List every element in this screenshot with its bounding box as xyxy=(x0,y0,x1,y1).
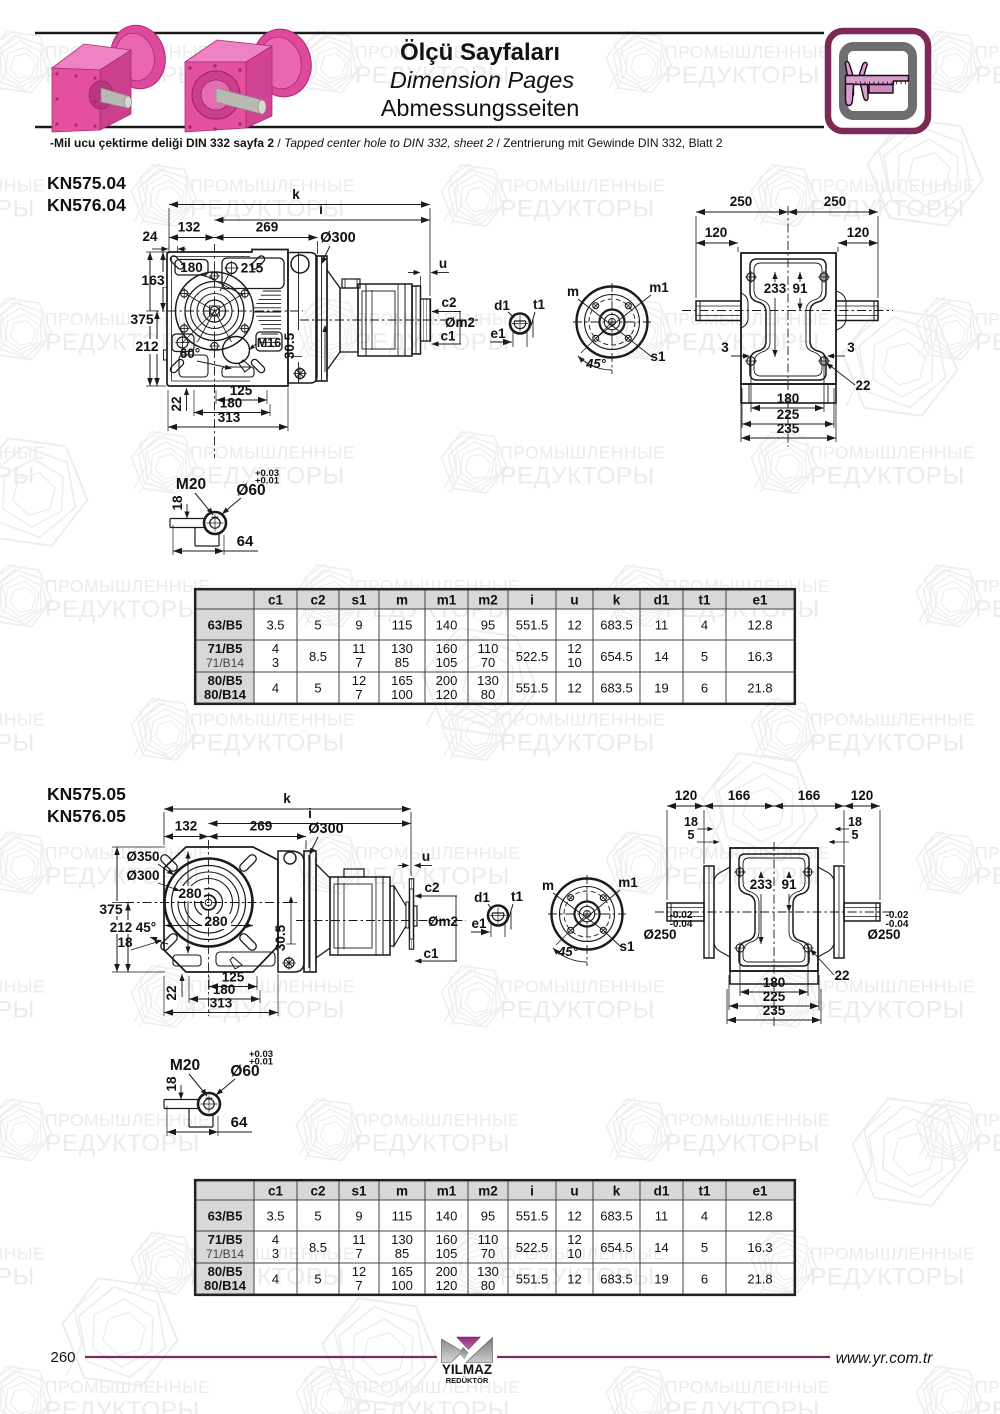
svg-text:5: 5 xyxy=(701,649,708,664)
svg-text:19: 19 xyxy=(654,1272,668,1287)
svg-text:m1: m1 xyxy=(437,1184,457,1199)
svg-text:250: 250 xyxy=(730,194,753,209)
svg-text:130: 130 xyxy=(477,1264,499,1279)
svg-text:5: 5 xyxy=(314,1272,321,1287)
svg-text:c1: c1 xyxy=(440,329,456,344)
svg-text:d1: d1 xyxy=(654,1184,670,1199)
svg-text:t1: t1 xyxy=(698,593,710,608)
svg-text:130: 130 xyxy=(391,1232,413,1247)
svg-text:100: 100 xyxy=(391,687,413,702)
svg-text:70: 70 xyxy=(481,655,495,670)
svg-text:165: 165 xyxy=(391,1264,413,1279)
svg-text:m: m xyxy=(542,878,554,893)
svg-text:7: 7 xyxy=(355,687,362,702)
svg-text:Ø350: Ø350 xyxy=(126,849,159,864)
svg-text:45°: 45° xyxy=(557,944,578,959)
svg-text:t1: t1 xyxy=(698,1184,710,1199)
svg-text:180: 180 xyxy=(763,975,786,990)
svg-text:d1: d1 xyxy=(494,298,510,313)
svg-text:522.5: 522.5 xyxy=(516,649,549,664)
svg-text:115: 115 xyxy=(392,618,413,633)
svg-text:www.yr.com.tr: www.yr.com.tr xyxy=(836,1350,934,1367)
svg-text:4: 4 xyxy=(272,681,279,696)
svg-text:Abmessungsseiten: Abmessungsseiten xyxy=(381,95,580,121)
svg-text:120: 120 xyxy=(436,687,458,702)
svg-text:12: 12 xyxy=(567,1232,581,1247)
svg-text:t1: t1 xyxy=(533,297,545,312)
svg-text:683.5: 683.5 xyxy=(600,618,633,633)
svg-text:i: i xyxy=(530,1184,534,1199)
svg-text:18: 18 xyxy=(164,1076,179,1092)
svg-text:120: 120 xyxy=(705,225,728,240)
svg-text:5: 5 xyxy=(852,828,859,842)
svg-text:30.5: 30.5 xyxy=(282,332,297,359)
svg-text:c1: c1 xyxy=(268,593,284,608)
svg-text:120: 120 xyxy=(851,788,874,803)
svg-text:s1: s1 xyxy=(619,939,635,954)
svg-text:132: 132 xyxy=(175,819,198,834)
svg-text:s1: s1 xyxy=(351,593,367,608)
svg-text:250: 250 xyxy=(824,194,847,209)
svg-text:63/B5: 63/B5 xyxy=(208,618,243,633)
svg-text:c2: c2 xyxy=(441,295,456,310)
svg-text:100: 100 xyxy=(391,1278,413,1293)
svg-text:18: 18 xyxy=(684,815,698,829)
svg-text:7: 7 xyxy=(355,1246,362,1261)
svg-text:120: 120 xyxy=(675,788,698,803)
svg-text:21.8: 21.8 xyxy=(747,1272,772,1287)
svg-text:3.5: 3.5 xyxy=(266,1209,284,1224)
svg-text:4: 4 xyxy=(272,1272,279,1287)
svg-text:10: 10 xyxy=(567,655,581,670)
svg-text:130: 130 xyxy=(391,641,413,656)
svg-text:132: 132 xyxy=(178,220,201,235)
svg-text:6: 6 xyxy=(701,681,708,696)
svg-text:9: 9 xyxy=(355,1209,362,1224)
svg-text:8.5: 8.5 xyxy=(309,1240,327,1255)
svg-text:60°: 60° xyxy=(180,346,200,361)
svg-text:130: 130 xyxy=(477,673,499,688)
svg-text:163: 163 xyxy=(141,272,165,288)
svg-text:u: u xyxy=(422,849,430,864)
svg-text:683.5: 683.5 xyxy=(600,681,633,696)
svg-text:m2: m2 xyxy=(478,1184,498,1199)
svg-text:11: 11 xyxy=(655,618,669,633)
svg-text:71/B5: 71/B5 xyxy=(208,641,243,656)
svg-text:551.5: 551.5 xyxy=(516,1272,549,1287)
svg-text:70: 70 xyxy=(481,1246,495,1261)
svg-text:683.5: 683.5 xyxy=(600,1272,633,1287)
svg-text:5: 5 xyxy=(314,618,321,633)
svg-text:551.5: 551.5 xyxy=(516,1209,549,1224)
svg-text:115: 115 xyxy=(392,1209,413,1224)
svg-text:u: u xyxy=(439,256,447,271)
svg-text:4: 4 xyxy=(272,641,279,656)
svg-text:654.5: 654.5 xyxy=(600,649,633,664)
svg-text:7: 7 xyxy=(355,1278,362,1293)
svg-text:3: 3 xyxy=(272,1246,279,1261)
svg-text:8.5: 8.5 xyxy=(309,649,327,664)
svg-text:12: 12 xyxy=(352,1264,366,1279)
svg-text:180: 180 xyxy=(777,391,800,406)
svg-text:212: 212 xyxy=(110,920,133,935)
svg-text:30.5: 30.5 xyxy=(273,924,288,951)
svg-text:11: 11 xyxy=(352,1232,366,1247)
svg-text:235: 235 xyxy=(763,1003,786,1018)
svg-text:3: 3 xyxy=(847,340,855,355)
svg-text:4: 4 xyxy=(701,1209,708,1224)
svg-text:m: m xyxy=(396,593,408,608)
svg-text:Ø300: Ø300 xyxy=(308,821,343,837)
svg-text:165: 165 xyxy=(391,673,413,688)
svg-text:m: m xyxy=(567,284,579,299)
svg-text:KN575.05: KN575.05 xyxy=(47,784,126,804)
svg-text:71/B14: 71/B14 xyxy=(206,1247,244,1261)
svg-text:63/B5: 63/B5 xyxy=(208,1209,243,1224)
svg-text:d1: d1 xyxy=(474,890,490,905)
svg-text:110: 110 xyxy=(478,1232,499,1247)
svg-text:22: 22 xyxy=(164,985,179,1000)
svg-text:Ø250: Ø250 xyxy=(643,927,676,942)
svg-text:260: 260 xyxy=(50,1349,75,1366)
svg-text:c1: c1 xyxy=(423,946,439,961)
svg-text:280: 280 xyxy=(178,885,202,901)
svg-text:313: 313 xyxy=(210,996,233,1011)
svg-text:KN575.04: KN575.04 xyxy=(47,173,126,193)
svg-text:110: 110 xyxy=(478,641,499,656)
svg-text:12: 12 xyxy=(567,1209,581,1224)
svg-text:KN576.04: KN576.04 xyxy=(47,195,126,215)
svg-text:k: k xyxy=(613,593,621,608)
svg-text:22: 22 xyxy=(855,378,870,393)
svg-text:120: 120 xyxy=(436,1278,458,1293)
svg-text:522.5: 522.5 xyxy=(516,1240,549,1255)
svg-text:551.5: 551.5 xyxy=(516,681,549,696)
svg-text:Ø250: Ø250 xyxy=(867,927,900,942)
svg-text:M20: M20 xyxy=(170,1057,200,1074)
svg-text:Ø300: Ø300 xyxy=(320,230,355,246)
svg-text:71/B5: 71/B5 xyxy=(208,1232,243,1247)
svg-text:12: 12 xyxy=(567,1272,581,1287)
svg-text:10: 10 xyxy=(567,1246,581,1261)
svg-text:12: 12 xyxy=(352,673,366,688)
svg-text:95: 95 xyxy=(481,1209,495,1224)
svg-text:375: 375 xyxy=(99,901,123,917)
svg-text:3: 3 xyxy=(721,340,729,355)
svg-text:166: 166 xyxy=(728,788,751,803)
svg-text:Dimension Pages: Dimension Pages xyxy=(390,67,574,93)
svg-text:4: 4 xyxy=(701,618,708,633)
svg-text:i: i xyxy=(530,593,534,608)
svg-text:24: 24 xyxy=(142,229,158,244)
svg-text:i: i xyxy=(319,202,323,217)
svg-text:105: 105 xyxy=(436,655,458,670)
svg-text:12.8: 12.8 xyxy=(747,618,772,633)
svg-text:k: k xyxy=(613,1184,621,1199)
svg-text:12: 12 xyxy=(567,681,581,696)
svg-text:u: u xyxy=(570,593,578,608)
svg-text:375: 375 xyxy=(130,311,154,327)
svg-text:140: 140 xyxy=(436,618,458,633)
svg-text:e1: e1 xyxy=(752,593,768,608)
svg-text:80: 80 xyxy=(481,1278,495,1293)
svg-text:551.5: 551.5 xyxy=(516,618,549,633)
svg-text:140: 140 xyxy=(436,1209,458,1224)
svg-text:215: 215 xyxy=(241,261,264,276)
svg-text:71/B14: 71/B14 xyxy=(206,656,244,670)
svg-text:s1: s1 xyxy=(650,349,666,364)
svg-text:166: 166 xyxy=(798,788,821,803)
svg-text:91: 91 xyxy=(792,281,808,296)
svg-text:80/B5: 80/B5 xyxy=(208,1264,243,1279)
svg-text:180: 180 xyxy=(180,260,203,275)
svg-text:212: 212 xyxy=(135,338,159,354)
svg-text:m1: m1 xyxy=(649,280,669,295)
svg-text:14: 14 xyxy=(654,649,668,664)
svg-text:c2: c2 xyxy=(310,593,325,608)
svg-text:64: 64 xyxy=(237,533,254,550)
svg-text:200: 200 xyxy=(436,1264,458,1279)
svg-text:Ø300: Ø300 xyxy=(126,868,159,883)
svg-text:k: k xyxy=(283,791,291,806)
svg-text:225: 225 xyxy=(763,989,786,1004)
svg-text:3: 3 xyxy=(272,655,279,670)
svg-text:105: 105 xyxy=(436,1246,458,1261)
svg-text:95: 95 xyxy=(481,618,495,633)
svg-text:i: i xyxy=(308,806,312,821)
svg-text:m1: m1 xyxy=(618,875,638,890)
svg-text:683.5: 683.5 xyxy=(600,1209,633,1224)
svg-text:t1: t1 xyxy=(511,889,523,904)
svg-text:21.8: 21.8 xyxy=(747,681,772,696)
svg-text:313: 313 xyxy=(218,410,241,425)
svg-text:91: 91 xyxy=(781,877,797,892)
svg-text:269: 269 xyxy=(250,819,273,834)
svg-text:u: u xyxy=(570,1184,578,1199)
svg-text:4: 4 xyxy=(272,1232,279,1247)
svg-text:235: 235 xyxy=(777,421,800,436)
svg-text:12.8: 12.8 xyxy=(747,1209,772,1224)
svg-text:7: 7 xyxy=(355,655,362,670)
svg-text:160: 160 xyxy=(436,1232,458,1247)
svg-text:Øm2: Øm2 xyxy=(428,914,458,929)
svg-text:Ölçü Sayfaları: Ölçü Sayfaları xyxy=(400,39,560,66)
svg-text:45°: 45° xyxy=(585,356,606,371)
svg-text:9: 9 xyxy=(355,618,362,633)
svg-text:225: 225 xyxy=(777,407,800,422)
svg-text:+0.01: +0.01 xyxy=(249,1057,274,1068)
svg-text:18: 18 xyxy=(848,815,862,829)
svg-text:12: 12 xyxy=(567,618,581,633)
svg-text:c2: c2 xyxy=(310,1184,325,1199)
svg-text:18: 18 xyxy=(117,935,133,950)
svg-text:280: 280 xyxy=(204,913,228,929)
svg-text:18: 18 xyxy=(170,495,185,511)
svg-text:16.3: 16.3 xyxy=(747,1240,772,1255)
svg-text:REDÜKTÖR: REDÜKTÖR xyxy=(446,1376,489,1385)
svg-text:e1: e1 xyxy=(490,326,506,341)
svg-text:e1: e1 xyxy=(752,1184,768,1199)
svg-text:80/B5: 80/B5 xyxy=(208,673,243,688)
svg-text:11: 11 xyxy=(655,1209,669,1224)
svg-text:+0.01: +0.01 xyxy=(255,476,280,487)
svg-text:5: 5 xyxy=(314,1209,321,1224)
svg-text:80: 80 xyxy=(481,687,495,702)
svg-text:d1: d1 xyxy=(654,593,670,608)
svg-text:m2: m2 xyxy=(478,593,498,608)
svg-text:160: 160 xyxy=(436,641,458,656)
svg-text:45°: 45° xyxy=(136,920,156,935)
svg-text:16.3: 16.3 xyxy=(747,649,772,664)
svg-text:80/B14: 80/B14 xyxy=(204,1278,247,1293)
svg-text:85: 85 xyxy=(395,655,409,670)
svg-text:22: 22 xyxy=(169,396,184,411)
svg-text:180: 180 xyxy=(220,396,243,411)
svg-text:m: m xyxy=(396,1184,408,1199)
svg-text:k: k xyxy=(292,187,300,202)
svg-text:5: 5 xyxy=(701,1240,708,1255)
svg-text:c1: c1 xyxy=(268,1184,284,1199)
svg-text:22: 22 xyxy=(834,968,849,983)
svg-text:200: 200 xyxy=(436,673,458,688)
svg-text:YILMAZ: YILMAZ xyxy=(442,1362,492,1377)
svg-text:64: 64 xyxy=(231,1114,248,1131)
svg-text:120: 120 xyxy=(847,225,870,240)
svg-text:233: 233 xyxy=(764,281,787,296)
svg-text:14: 14 xyxy=(654,1240,668,1255)
svg-text:M20: M20 xyxy=(176,476,206,493)
svg-text:5: 5 xyxy=(688,828,695,842)
svg-text:3.5: 3.5 xyxy=(266,618,284,633)
svg-text:19: 19 xyxy=(654,681,668,696)
svg-text:m1: m1 xyxy=(437,593,457,608)
svg-text:233: 233 xyxy=(750,877,773,892)
svg-text:5: 5 xyxy=(314,681,321,696)
svg-text:s1: s1 xyxy=(351,1184,367,1199)
svg-text:269: 269 xyxy=(256,220,279,235)
svg-text:KN576.05: KN576.05 xyxy=(47,806,126,826)
svg-text:-Mil ucu çektirme deliği DIN 3: -Mil ucu çektirme deliği DIN 332 sayfa 2… xyxy=(50,136,723,150)
svg-text:85: 85 xyxy=(395,1246,409,1261)
svg-text:e1: e1 xyxy=(471,916,487,931)
svg-text:c2: c2 xyxy=(424,880,439,895)
svg-text:11: 11 xyxy=(352,641,366,656)
svg-text:12: 12 xyxy=(567,641,581,656)
svg-text:6: 6 xyxy=(701,1272,708,1287)
svg-text:80/B14: 80/B14 xyxy=(204,687,247,702)
svg-text:654.5: 654.5 xyxy=(600,1240,633,1255)
